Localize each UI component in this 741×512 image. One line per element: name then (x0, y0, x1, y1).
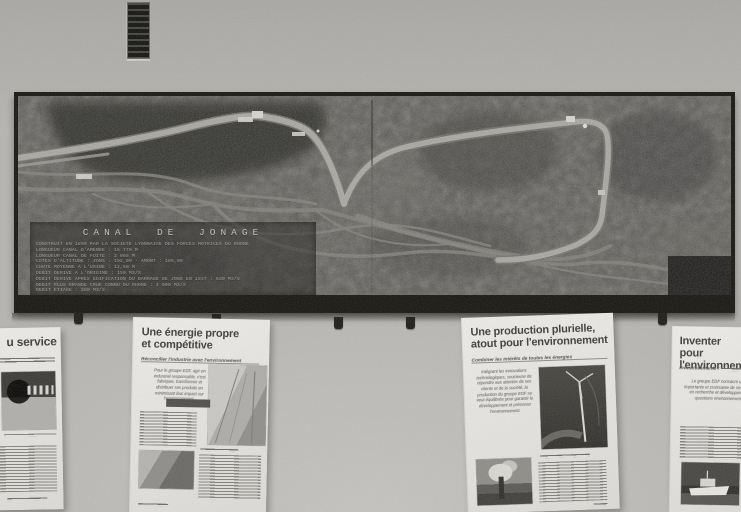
poster-inventer-intro: Le groupe EDF consacre une part importan… (683, 378, 741, 402)
model-title-plaque: CANAL DE JONAGE CONSTRUIT EN 1899 PAR LA… (30, 222, 316, 295)
mounting-bracket (406, 317, 415, 329)
photo-power-lines (207, 365, 267, 446)
poster-body-lines (680, 426, 741, 459)
poster-energie: Une énergie propre et compétitive Réconc… (129, 317, 270, 512)
poster-energie-title: Une énergie propre et compétitive (141, 327, 263, 353)
plaque-title: CANAL DE JONAGE (30, 222, 316, 238)
title-line: atout pour l'environnement (471, 335, 611, 352)
photo-scene: CANAL DE JONAGE CONSTRUIT EN 1899 PAR LA… (0, 0, 741, 512)
photo-ship (681, 462, 740, 505)
section-caption-band (166, 399, 210, 408)
model-cast-shadow (12, 313, 735, 322)
poster-inventer-subtitle: Investissements : (679, 366, 719, 372)
air-vent-grille (127, 2, 150, 59)
poster-body-lines (198, 454, 261, 499)
power-lines-sketch (207, 365, 267, 446)
poster-inventer: Inventer pour l'environnement Investisse… (669, 326, 741, 512)
wind-turbine-sketch (539, 365, 608, 449)
ship-sketch (681, 462, 740, 505)
poster-footer-line (7, 497, 47, 501)
poster-body-lines (538, 460, 607, 502)
mounting-bracket (334, 317, 343, 329)
poster-footer-line (594, 503, 608, 506)
mounting-bracket (74, 312, 83, 324)
poster-energie-intro: Pour le groupe EDF, agir en industriel r… (153, 367, 206, 402)
photo-wind-turbine (539, 365, 608, 449)
poster-body-lines (139, 411, 197, 446)
poster-production-title: Une production plurielle, atout pour l'e… (470, 323, 611, 352)
caption-line (200, 448, 238, 452)
poster-service: u service (0, 327, 64, 511)
photo-cooling-tower (476, 458, 533, 506)
plaque-line: DEBIT ETIAGE : 200 M3/S (36, 288, 316, 294)
subtitle-continuation-line (721, 368, 741, 372)
plaque-text-lines: CONSTRUIT EN 1899 PAR LA SOCIETE LYONNAI… (30, 238, 316, 294)
photo-control-room (1, 371, 56, 430)
control-panel-lights (27, 385, 53, 394)
mounting-bracket (658, 313, 667, 325)
cooling-tower-sketch (476, 458, 533, 506)
poster-body-lines (0, 445, 57, 492)
poster-production: Une production plurielle, atout pour l'e… (461, 313, 620, 512)
poster-production-intro: Intégrant les innovations technologiques… (475, 368, 535, 415)
relief-model-frame: CANAL DE JONAGE CONSTRUIT EN 1899 PAR LA… (14, 92, 735, 313)
title-line: et compétitive (141, 339, 263, 353)
photo-caption-lines (4, 433, 56, 437)
poster-service-subtitle-lines (0, 357, 55, 363)
photo-aerial-dam (138, 450, 194, 489)
poster-footer-line (138, 503, 168, 506)
caption-line (540, 454, 590, 459)
poster-service-title: u service (0, 335, 57, 349)
